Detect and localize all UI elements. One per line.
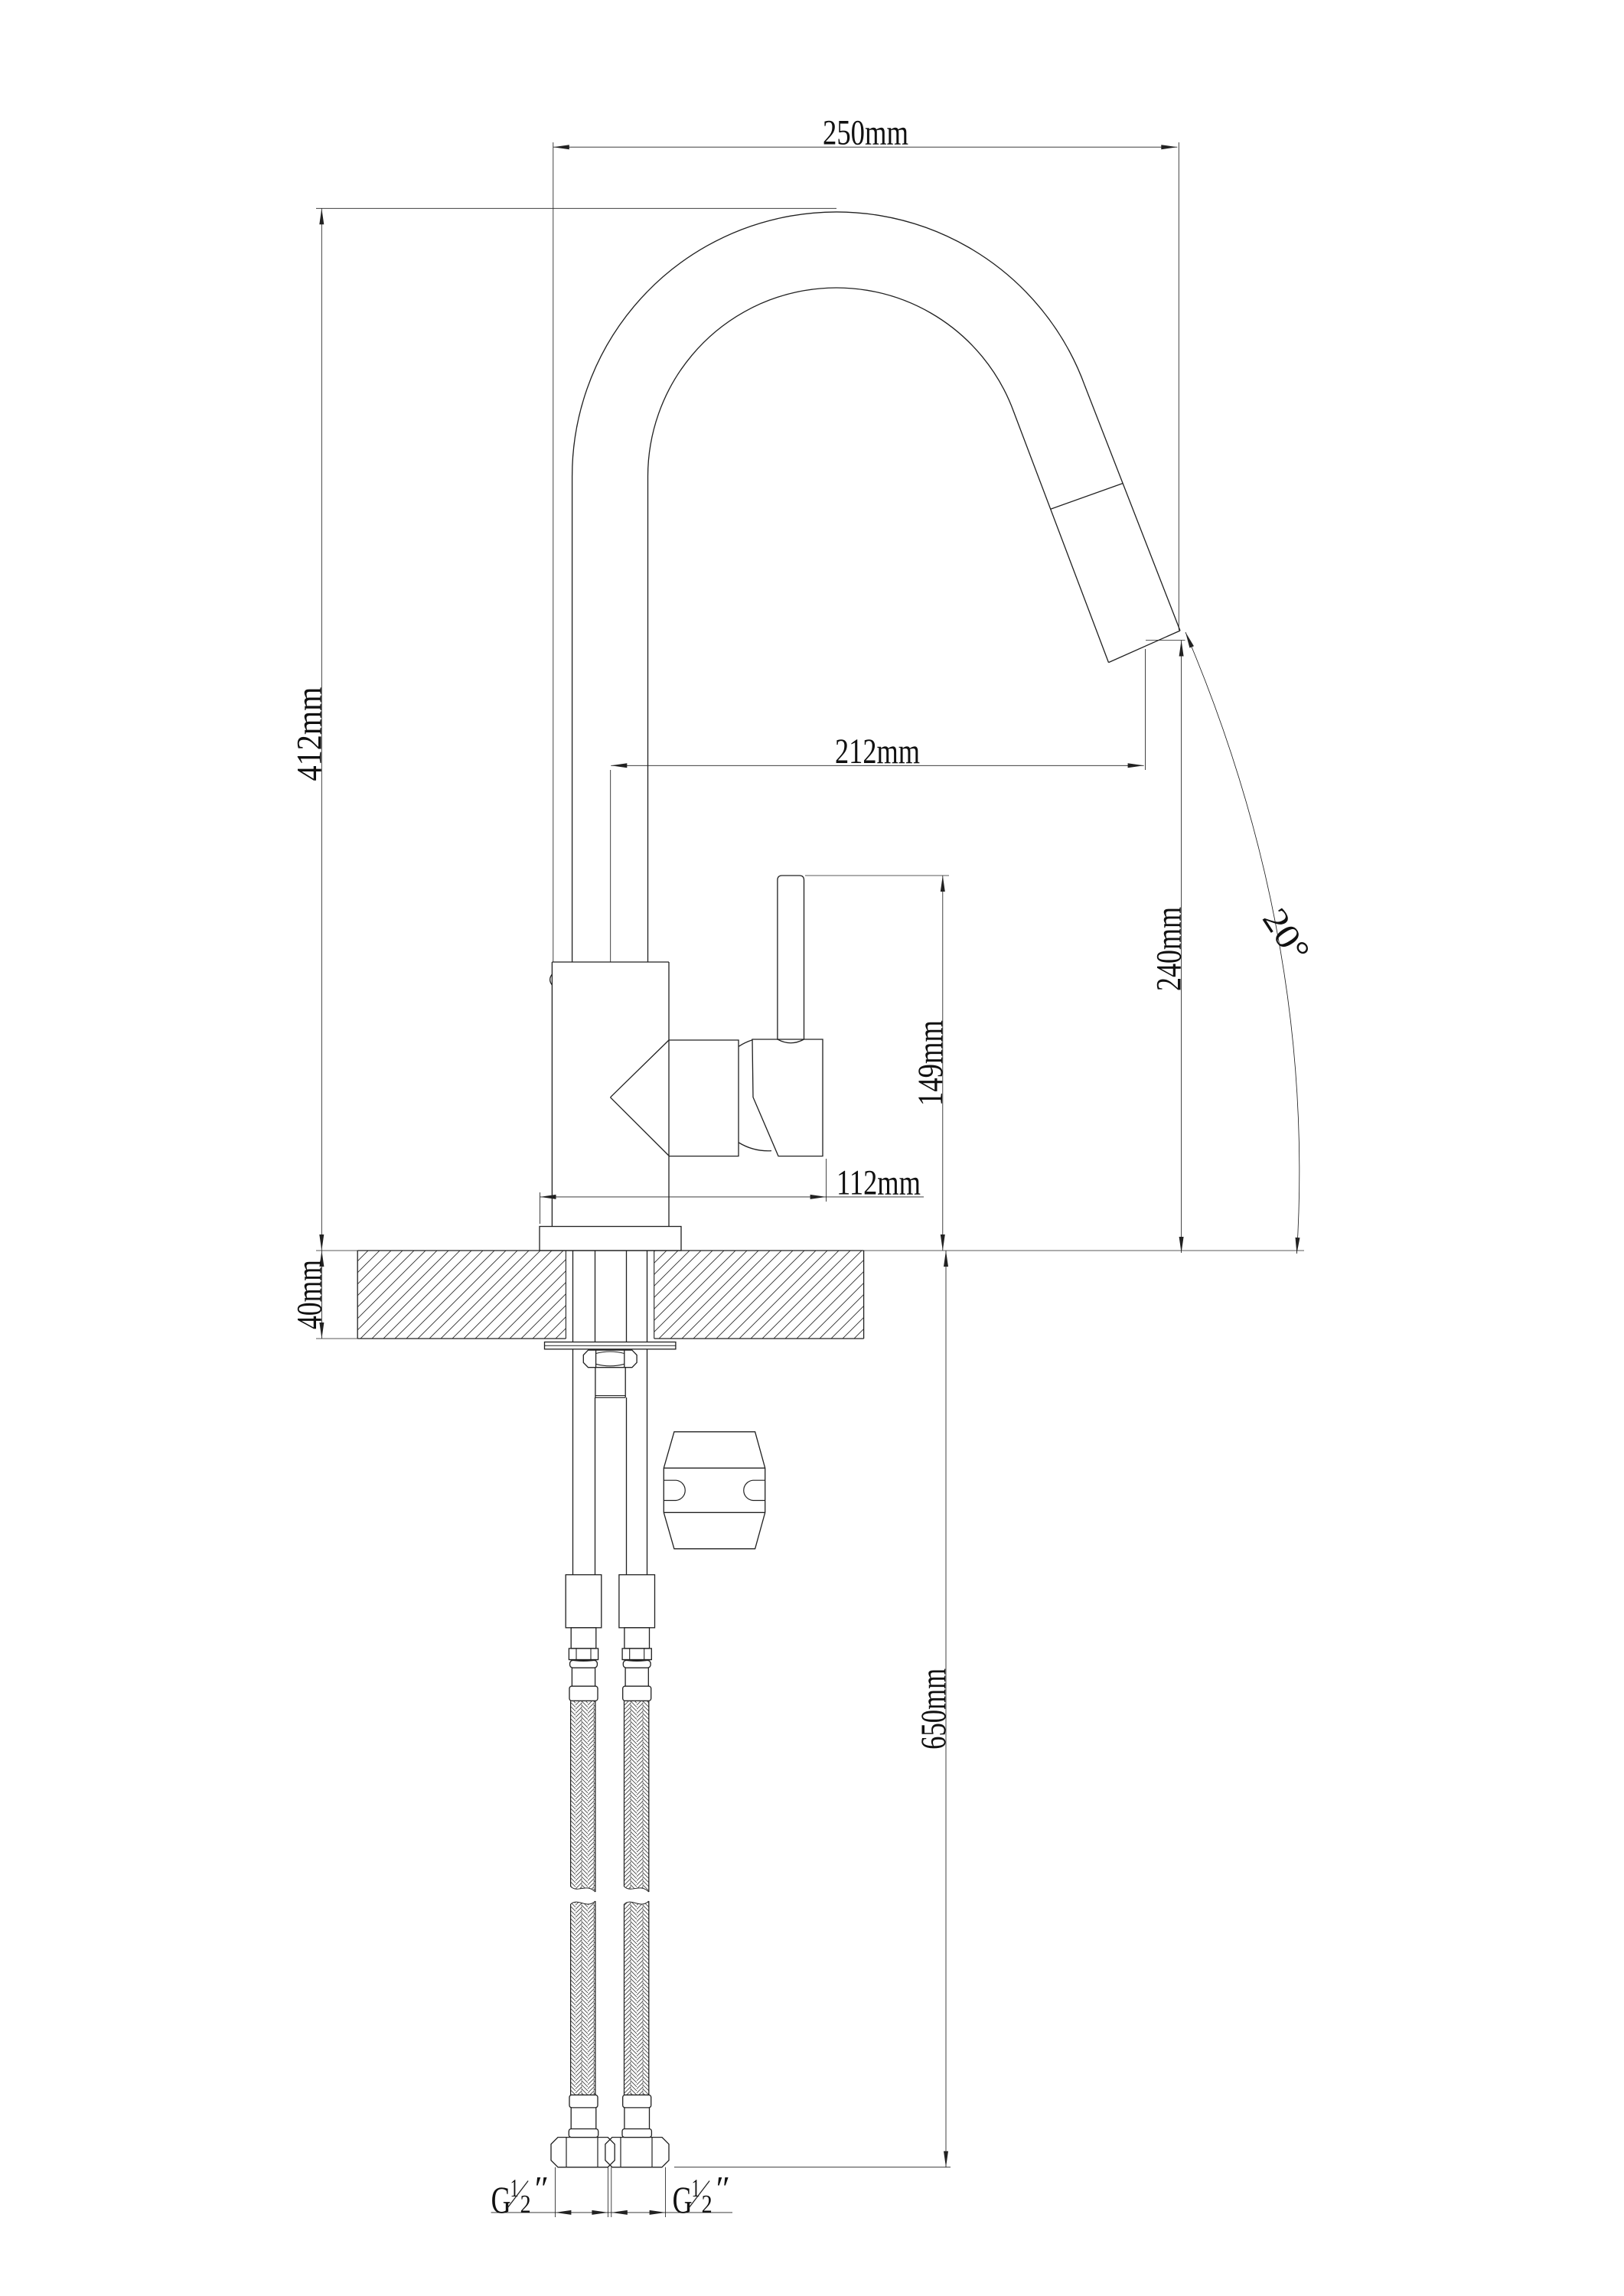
svg-text:G: G [491, 2178, 511, 2221]
svg-text:2: 2 [702, 2190, 713, 2219]
svg-text:412mm: 412mm [289, 687, 329, 781]
svg-text:240mm: 240mm [1150, 907, 1189, 991]
svg-text:212mm: 212mm [835, 732, 920, 771]
svg-text:″: ″ [535, 2170, 549, 2207]
svg-text:149mm: 149mm [911, 1020, 951, 1106]
svg-text:″: ″ [716, 2170, 730, 2207]
svg-text:112mm: 112mm [836, 1163, 921, 1202]
svg-text:G: G [673, 2178, 693, 2221]
svg-text:250mm: 250mm [823, 113, 908, 153]
svg-text:2: 2 [520, 2190, 531, 2219]
svg-text:650mm: 650mm [914, 1668, 954, 1750]
svg-text:40mm: 40mm [289, 1260, 329, 1329]
